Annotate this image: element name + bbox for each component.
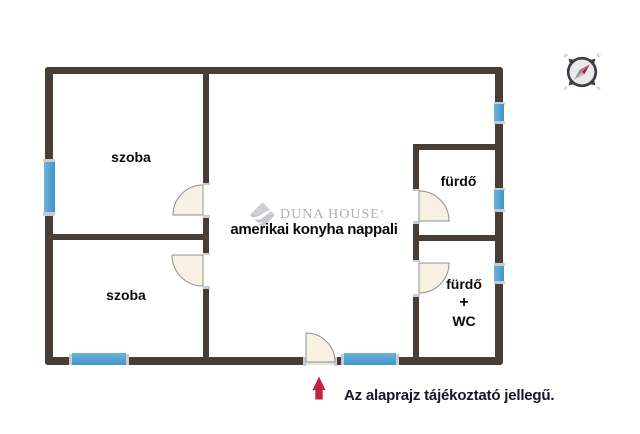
svg-text:S: S [562,84,569,91]
svg-text:N: N [595,53,602,60]
svg-text:E: E [594,85,601,92]
